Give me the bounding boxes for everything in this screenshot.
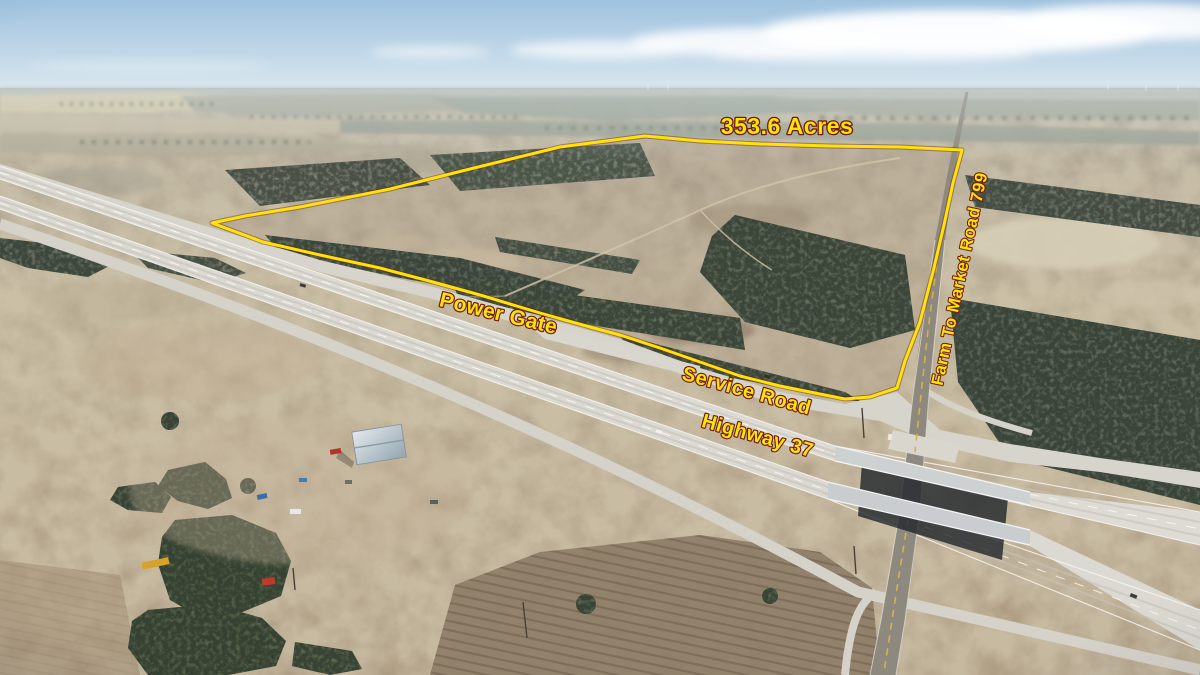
- acreage-label: 353.6 Acres: [721, 113, 854, 139]
- aerial-photo: 353.6 Acres Power Gate Service Road High…: [0, 0, 1200, 675]
- vignette: [0, 0, 1200, 675]
